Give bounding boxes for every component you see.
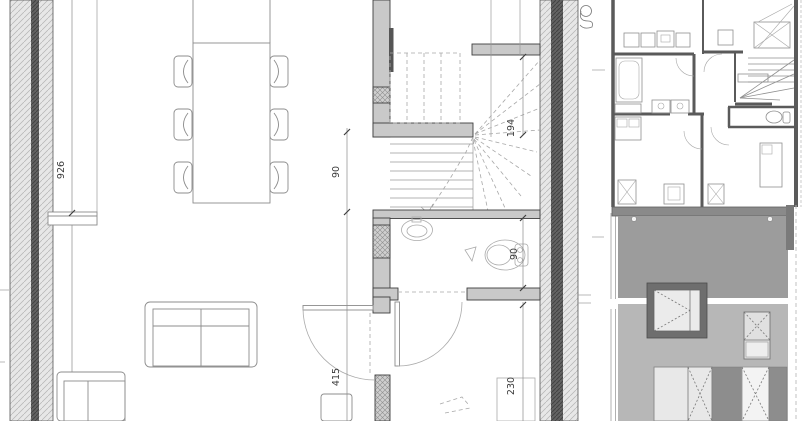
stair-walk-line: [428, 137, 473, 213]
small-window-right: [744, 312, 770, 359]
anchor-dot: [632, 217, 637, 222]
dim-label-926: 926: [56, 161, 67, 179]
armchair: [57, 372, 125, 421]
drawing-sheet: 926 90 194 90 415 230: [0, 0, 802, 421]
pier: [769, 367, 787, 421]
dim-label-194: 194: [506, 119, 517, 137]
exterior-wall-right: [540, 0, 578, 421]
upper-plan-cabinets: [624, 30, 733, 47]
ground-floor-plan: 926 90 194 90 415 230: [0, 0, 610, 421]
scroll-symbol: [580, 6, 593, 29]
toilet: [485, 240, 528, 270]
upper-plan-shaft: [754, 4, 794, 48]
dim-label-90-wc: 90: [509, 248, 520, 260]
upper-plan-wc: [766, 111, 790, 123]
ground-floor-glazing: [654, 367, 787, 421]
exterior-wall-left: [10, 0, 53, 421]
window-ground-left: [654, 367, 712, 421]
hall-walls: [370, 297, 390, 421]
upper-plan-stair: [738, 58, 794, 100]
dim-label-230: 230: [506, 377, 517, 395]
paper-holder: [465, 247, 476, 261]
pier: [712, 367, 742, 421]
dining-table: [193, 0, 270, 203]
upper-plan-bedrooms: [615, 117, 782, 204]
stair-walls: [373, 0, 540, 137]
dashed-object: [440, 397, 470, 413]
margin-ticks: [578, 70, 605, 303]
framed-window-upper: [647, 283, 707, 338]
facade-elevation: [608, 205, 802, 421]
anchor-dot: [768, 217, 773, 222]
roof-band: [612, 207, 790, 216]
upper-floor-plan: [608, 0, 802, 207]
insulation-core: [551, 0, 563, 421]
dim-label-415: 415: [331, 368, 342, 386]
neighbor-wall-stub: [786, 205, 794, 250]
dim-label-90-stair: 90: [331, 166, 342, 178]
wash-basin: [402, 217, 433, 241]
hall-door: [395, 302, 462, 366]
sofa: [145, 302, 257, 367]
window-sill: [48, 212, 97, 225]
stair-treads: [390, 137, 473, 210]
dimension-lines: [69, 54, 526, 421]
insulation-core: [31, 0, 39, 421]
